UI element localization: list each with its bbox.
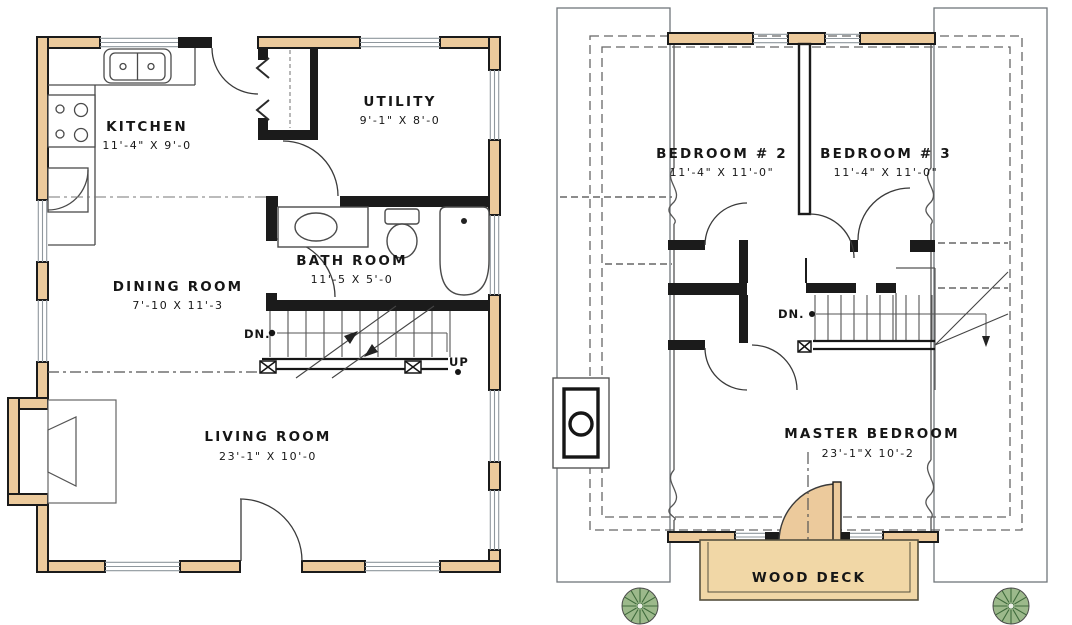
bath-room-dims: 11'-5 X 5'-0 xyxy=(311,273,394,286)
floor-plan-page: KITCHEN 11'-4" X 9'-0 UTILITY 9'-1" X 8'… xyxy=(0,0,1072,625)
up-reference-dot xyxy=(455,369,461,375)
stair-arrow-down xyxy=(364,344,378,357)
utility-dims: 9'-1" X 8'-0 xyxy=(360,114,441,127)
deck-door xyxy=(765,452,850,542)
first-floor-plan: KITCHEN 11'-4" X 9'-0 UTILITY 9'-1" X 8'… xyxy=(8,37,500,572)
newel-post xyxy=(798,341,811,352)
ff-dn-label: DN. xyxy=(244,327,271,341)
newel-posts xyxy=(260,361,421,373)
closet-bifold-doors xyxy=(257,58,269,120)
bedroom2-door-arc xyxy=(705,203,747,245)
back-door-arc xyxy=(212,48,258,94)
floor-plan-drawing: KITCHEN 11'-4" X 9'-0 UTILITY 9'-1" X 8'… xyxy=(0,0,1072,625)
stair-treads xyxy=(815,295,932,341)
sf-dn-label: DN. xyxy=(778,307,805,321)
hall-closet-door-arc xyxy=(705,348,747,390)
bush-icon xyxy=(993,588,1029,624)
wood-deck-label: WOOD DECK xyxy=(752,570,866,586)
dining-room-dims: 7'-10 X 11'-3 xyxy=(132,299,223,312)
toilet-icon xyxy=(385,209,419,258)
bedroom2-label: BEDROOM # 2 xyxy=(656,146,788,162)
dn-guide-line xyxy=(277,333,447,352)
bedroom3-dims: 11'-4" X 11'-0" xyxy=(834,166,939,179)
fridge-icon xyxy=(48,168,88,212)
bedroom3-door-arc xyxy=(810,214,854,258)
bedroom3-label: BEDROOM # 3 xyxy=(820,146,952,162)
kitchen-sink-icon xyxy=(104,49,171,83)
wall-break-squiggle xyxy=(926,460,934,518)
chimney-icon xyxy=(553,378,609,468)
living-room-label: LIVING ROOM xyxy=(204,429,331,445)
vanity-sink-icon xyxy=(295,213,337,241)
sf-interior-walls xyxy=(668,240,935,350)
stove-icon xyxy=(48,95,95,147)
utility-door-arc xyxy=(283,141,338,196)
kitchen-dims: 11'-4" X 9'-0 xyxy=(102,139,191,152)
bedroom2-dims: 11'-4" X 11'-0" xyxy=(670,166,775,179)
utility-label: UTILITY xyxy=(363,94,436,110)
stair-treads xyxy=(270,311,450,357)
bush-icon xyxy=(622,588,658,624)
master-door-arc xyxy=(752,345,797,390)
deck-door-leaf xyxy=(833,482,841,542)
stairwell-edges xyxy=(896,268,935,390)
living-room-dims: 23'-1" X 10'-0 xyxy=(219,450,317,463)
entry-door-arc xyxy=(240,499,302,561)
bathtub-icon xyxy=(440,207,489,295)
dn-reference-dot xyxy=(809,311,815,317)
master-bedroom-dims: 23'-1"X 10'-2 xyxy=(822,447,915,460)
ff-labels: KITCHEN 11'-4" X 9'-0 UTILITY 9'-1" X 8'… xyxy=(102,94,468,463)
center-partition-wall xyxy=(799,44,810,214)
second-floor-plan: BEDROOM # 2 11'-4" X 11'-0" BEDROOM # 3 … xyxy=(553,8,1047,624)
stair-stringer xyxy=(813,341,935,349)
bath-room-label: BATH ROOM xyxy=(296,253,407,269)
ff-up-label: UP xyxy=(449,355,469,369)
fireplace-icon xyxy=(48,400,116,503)
bedroom3-closet-door-arc xyxy=(858,188,910,240)
dining-room-label: DINING ROOM xyxy=(113,279,244,295)
ff-stairs xyxy=(48,306,461,378)
kitchen-label: KITCHEN xyxy=(106,119,188,135)
master-bedroom-label: MASTER BEDROOM xyxy=(784,426,959,442)
